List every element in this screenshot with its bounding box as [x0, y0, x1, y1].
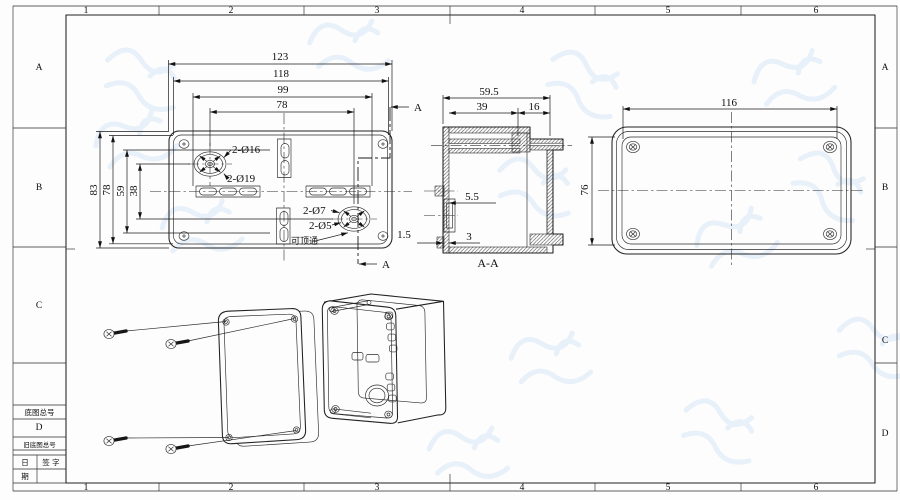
zone-col-label: 3 — [375, 6, 380, 16]
zone-col-label: 6 — [814, 6, 819, 16]
zone-col-label: 1 — [84, 6, 89, 16]
front-callouts: 2-Ø16 2-Ø19 2-Ø7 2-Ø5 可顶通 — [224, 144, 348, 247]
signature-label: 签 字 — [42, 457, 59, 467]
callout-2xd5: 2-Ø5 — [309, 220, 332, 232]
zone-col-label: 6 — [814, 483, 819, 493]
section-cut-line: A A — [358, 102, 422, 271]
dim-38: 38 — [128, 185, 140, 197]
zone-row-label: A — [882, 63, 889, 73]
zone-row-label: D — [882, 429, 889, 439]
zone-col-label: 4 — [520, 483, 525, 493]
old-base-drawing-no-label: 旧底图总号 — [23, 440, 56, 449]
dim-116: 116 — [721, 97, 738, 109]
zone-row-label: B — [36, 183, 42, 193]
zone-col-label: 3 — [375, 483, 380, 493]
callout-knockthrough: 可顶通 — [291, 236, 318, 247]
callout-2xd19: 2-Ø19 — [227, 173, 256, 185]
dim-76: 76 — [579, 184, 591, 196]
dim-59: 59 — [115, 185, 127, 197]
dim-59-5: 59.5 — [479, 86, 499, 98]
dim-99: 99 — [278, 84, 290, 96]
front-view: A A 2-Ø16 2-Ø19 2-Ø7 2-Ø5 可顶通 — [88, 51, 422, 271]
zone-col-label: 5 — [666, 483, 671, 493]
mounting-screws — [104, 329, 188, 453]
dim-123: 123 — [272, 51, 289, 63]
date-label: 期 — [21, 472, 29, 481]
drawing-canvas: 1 2 3 4 5 6 1 2 3 4 5 6 A B C D A B C D … — [0, 0, 900, 500]
screw — [104, 436, 126, 445]
dim-39: 39 — [477, 101, 489, 113]
date-label: 日 — [21, 458, 29, 467]
zone-row-label: A — [36, 63, 43, 73]
front-vertical-dims: 83 78 59 38 — [88, 132, 333, 249]
screw — [166, 444, 188, 453]
callout-2xd7: 2-Ø7 — [303, 205, 326, 217]
lid-3d — [218, 309, 305, 444]
section-label: A-A — [477, 256, 499, 270]
cad-drawing-sheet: 1 2 3 4 5 6 1 2 3 4 5 6 A B C D A B C D … — [0, 0, 900, 500]
dim-5-5: 5.5 — [465, 191, 479, 203]
dim-16: 16 — [529, 101, 541, 113]
screw — [104, 329, 126, 338]
zone-col-label: 4 — [520, 6, 525, 16]
zone-col-label: 1 — [84, 483, 89, 493]
dim-3: 3 — [466, 231, 472, 243]
section-arrow-label-bottom: A — [382, 259, 390, 271]
dim-83: 83 — [88, 184, 100, 196]
zone-row-label: C — [882, 336, 888, 346]
base-drawing-no-label: 底图总号 — [25, 407, 55, 417]
title-block: 底图总号 旧底图总号 日 签 字 期 — [13, 405, 66, 483]
zone-col-label: 2 — [229, 483, 234, 493]
front-horizontal-dims: 123 118 99 78 — [169, 51, 393, 204]
section-arrow-label-top: A — [414, 102, 422, 114]
dim-78-left: 78 — [101, 184, 113, 196]
zone-row-label: B — [882, 183, 888, 193]
zone-row-label: D — [36, 423, 43, 433]
screw — [166, 339, 188, 348]
dim-1-5: 1.5 — [397, 229, 411, 241]
pictorial-exploded-view — [104, 294, 446, 454]
zone-col-label: 2 — [229, 6, 234, 16]
enclosure-base-3d — [322, 294, 446, 423]
zone-row-label: C — [36, 301, 42, 311]
zone-col-label: 5 — [666, 6, 671, 16]
side-view: 116 76 — [579, 97, 864, 268]
dim-78-top: 78 — [277, 99, 289, 111]
dim-118: 118 — [273, 68, 290, 80]
